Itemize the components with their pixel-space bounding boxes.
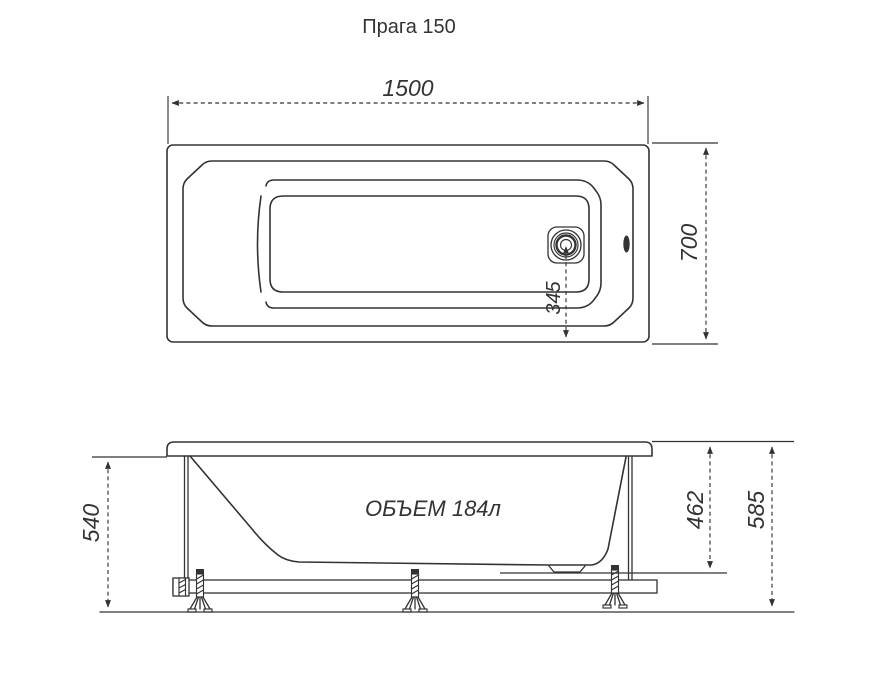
- drawing-title: Прага 150: [362, 16, 456, 38]
- drawing-canvas: Прага 150 1500: [0, 0, 895, 682]
- dimension-shell-depth-462: 462: [500, 447, 727, 573]
- total-height-label: 585: [743, 491, 769, 530]
- left-support-rail: [185, 456, 189, 578]
- drain-offset-label: 345: [543, 280, 565, 314]
- cap-threaded-rod: [179, 578, 186, 596]
- tub-basin-bottom: [270, 196, 589, 292]
- bathtub-drawing: Прага 150 1500: [0, 0, 895, 682]
- dimension-rim-height-540: 540: [78, 457, 167, 607]
- tub-mid-contour-left-arc: [258, 196, 262, 292]
- dimension-length-1500: 1500: [168, 75, 648, 144]
- top-view: 1500 345 7: [167, 75, 718, 344]
- overflow-hole: [623, 236, 629, 253]
- side-view: ОБЪЕМ 184л 540 462 585: [78, 442, 794, 613]
- rim-profile: [167, 442, 652, 456]
- width-label: 700: [676, 224, 702, 263]
- dimension-width-700: 700: [652, 143, 718, 344]
- length-label: 1500: [382, 75, 433, 101]
- volume-label: ОБЪЕМ 184л: [365, 496, 501, 521]
- drain-trap: [549, 566, 585, 572]
- shell-depth-label: 462: [682, 491, 708, 530]
- rim-height-label: 540: [78, 504, 104, 543]
- dimension-total-height-585: 585: [743, 447, 772, 606]
